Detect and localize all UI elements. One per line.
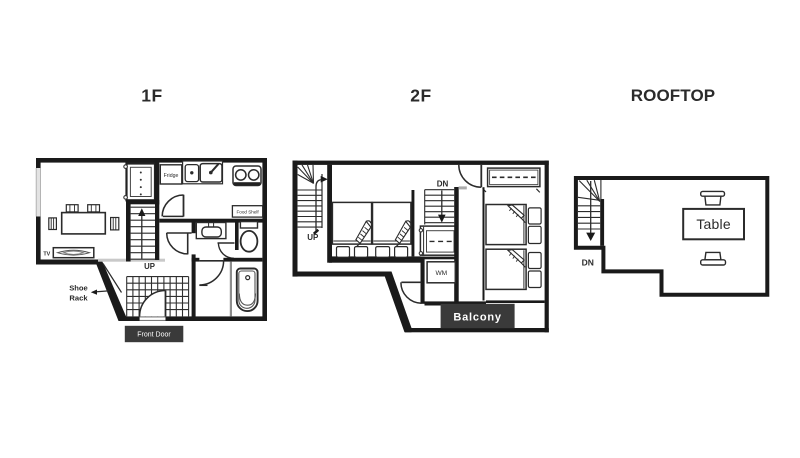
svg-text:Rack: Rack	[69, 293, 88, 302]
svg-text:Balcony: Balcony	[453, 312, 501, 324]
svg-text:TV: TV	[43, 252, 50, 258]
svg-text:Table: Table	[696, 216, 730, 232]
svg-text:ROOFTOP: ROOFTOP	[631, 86, 715, 105]
svg-text:Fridge: Fridge	[164, 173, 179, 179]
svg-text:1F: 1F	[141, 86, 162, 106]
svg-text:UP: UP	[307, 233, 319, 242]
svg-text:Shoe: Shoe	[69, 283, 88, 292]
svg-text:2F: 2F	[410, 86, 431, 106]
svg-text:Food Shelf: Food Shelf	[236, 210, 259, 215]
svg-text:DN: DN	[437, 180, 449, 189]
svg-text:WM: WM	[435, 270, 447, 277]
svg-text:Front Door: Front Door	[137, 332, 171, 339]
svg-text:UP: UP	[144, 262, 155, 271]
svg-text:DN: DN	[582, 258, 594, 268]
